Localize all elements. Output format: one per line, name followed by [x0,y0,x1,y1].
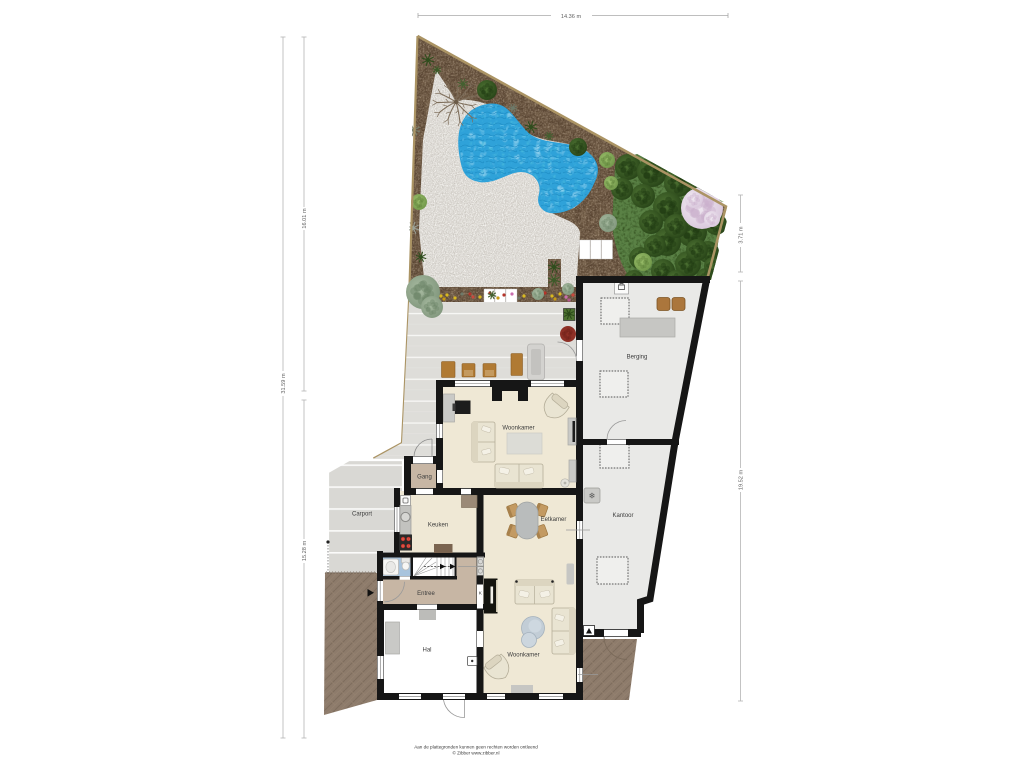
svg-text:16.01 m: 16.01 m [302,208,308,229]
svg-text:Entree: Entree [417,591,435,597]
svg-text:Berging: Berging [627,355,648,361]
svg-text:Carport: Carport [352,512,372,518]
svg-text:3.71 m: 3.71 m [739,226,745,243]
svg-text:Woonkamer: Woonkamer [507,653,539,659]
svg-text:Woonkamer: Woonkamer [502,426,534,432]
svg-text:Aan de plattegronden kunnen ge: Aan de plattegronden kunnen geen rechten… [414,745,538,750]
svg-text:31.59 m: 31.59 m [281,373,287,394]
svg-text:❄: ❄ [589,492,596,501]
svg-text:Gang: Gang [417,475,432,481]
svg-text:© Zibber www.zibber.nl: © Zibber www.zibber.nl [452,750,499,756]
svg-text:15.28 m: 15.28 m [302,541,308,562]
svg-text:Keuken: Keuken [428,523,448,529]
svg-text:Eetkamer: Eetkamer [541,517,567,523]
svg-text:19.52 m: 19.52 m [739,470,745,491]
svg-text:Hal: Hal [422,648,431,654]
svg-text:Kantoor: Kantoor [612,513,633,519]
svg-text:14.36 m: 14.36 m [561,14,582,20]
